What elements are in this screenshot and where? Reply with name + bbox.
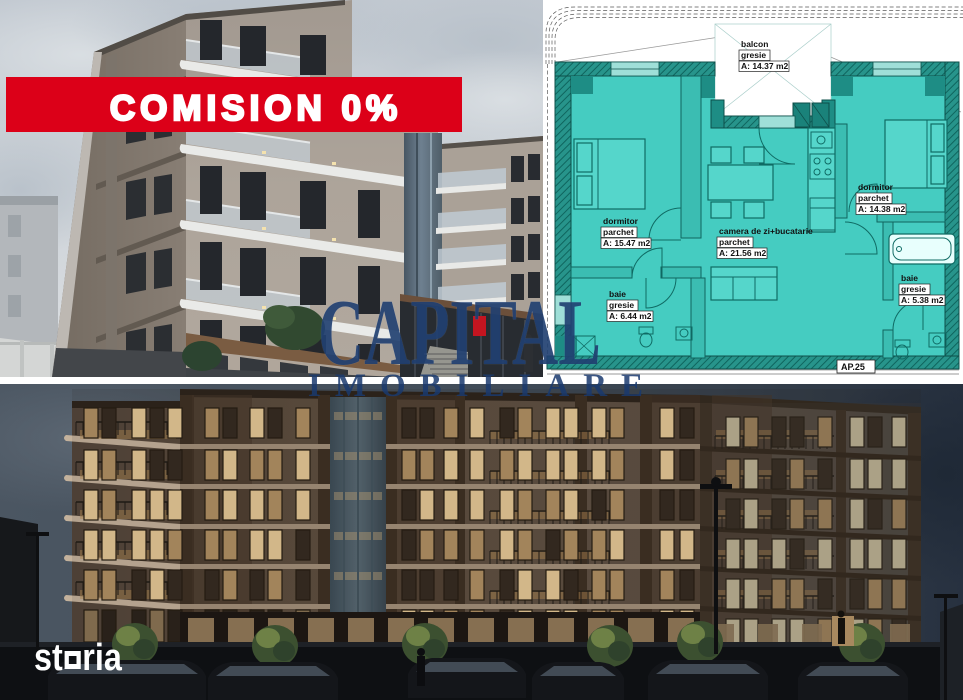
svg-text:A: 14.37 m2: A: 14.37 m2 bbox=[741, 61, 789, 71]
svg-text:gresie: gresie bbox=[609, 300, 634, 310]
svg-text:COMISION 0%: COMISION 0% bbox=[110, 89, 402, 128]
svg-text:balcon: balcon bbox=[741, 39, 768, 49]
svg-text:baie: baie bbox=[609, 289, 626, 299]
svg-text:gresie: gresie bbox=[741, 50, 766, 60]
svg-text:A: 14.38 m2: A: 14.38 m2 bbox=[858, 204, 906, 214]
svg-text:dormitor: dormitor bbox=[858, 182, 894, 192]
svg-text:parchet: parchet bbox=[603, 227, 634, 237]
svg-text:gresie: gresie bbox=[901, 284, 926, 294]
svg-text:AP.25: AP.25 bbox=[841, 362, 865, 372]
svg-text:A: 15.47 m2: A: 15.47 m2 bbox=[603, 238, 651, 248]
svg-text:A: 21.56 m2: A: 21.56 m2 bbox=[719, 248, 767, 258]
svg-text:A: 6.44 m2: A: 6.44 m2 bbox=[609, 311, 652, 321]
svg-text:baie: baie bbox=[901, 273, 918, 283]
svg-text:parchet: parchet bbox=[858, 193, 889, 203]
svg-text:parchet: parchet bbox=[719, 237, 750, 247]
svg-text:camera de zi+bucatarie: camera de zi+bucatarie bbox=[719, 226, 813, 236]
svg-text:A: 5.38 m2: A: 5.38 m2 bbox=[901, 295, 944, 305]
svg-text:dormitor: dormitor bbox=[603, 216, 639, 226]
